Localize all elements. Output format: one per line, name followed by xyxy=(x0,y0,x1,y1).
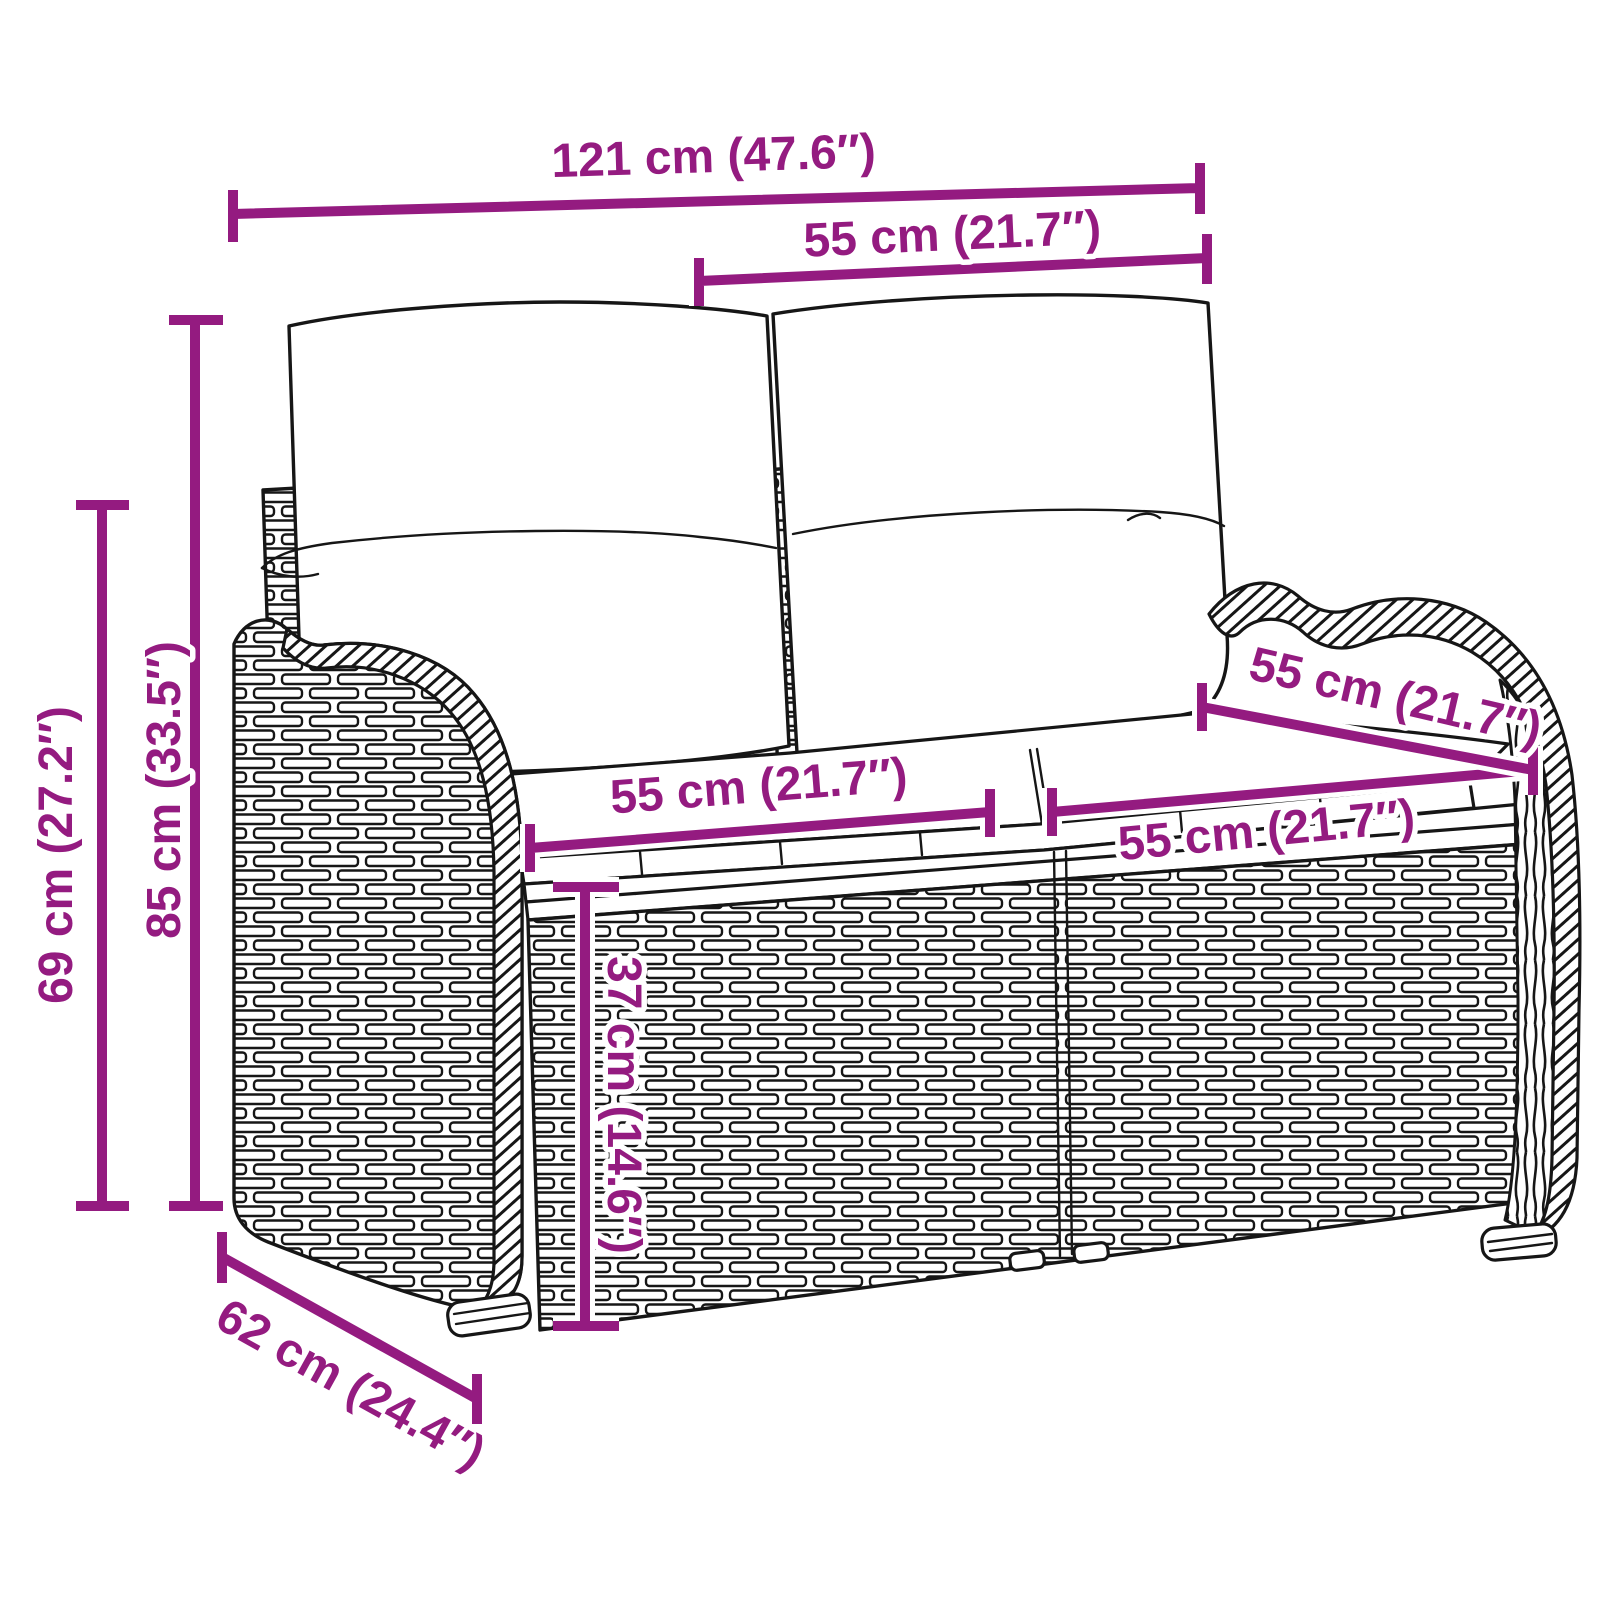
back-cushion-right xyxy=(773,295,1228,753)
dim-total-height: 85 cm (33.5″) xyxy=(138,320,223,1206)
right-armrest-foot xyxy=(1481,1223,1558,1261)
dim-total-height-label: 85 cm (33.5″) xyxy=(138,641,191,939)
dim-back-cushion-width: 55 cm (21.7″) xyxy=(699,201,1207,306)
dimension-diagram: 121 cm (47.6″) 55 cm (21.7″) 85 cm (33.5… xyxy=(0,0,1600,1600)
left-armrest xyxy=(234,620,532,1338)
bench-base xyxy=(524,804,1523,1330)
dim-overall-width-label: 121 cm (47.6″) xyxy=(551,125,877,188)
diagram-canvas: 121 cm (47.6″) 55 cm (21.7″) 85 cm (33.5… xyxy=(0,0,1600,1600)
dim-armrest-height: 69 cm (27.2″) xyxy=(30,505,129,1206)
dim-armrest-height-label: 69 cm (27.2″) xyxy=(30,706,83,1004)
dim-seat-height-label: 37 cm (14.6″) xyxy=(597,956,650,1254)
